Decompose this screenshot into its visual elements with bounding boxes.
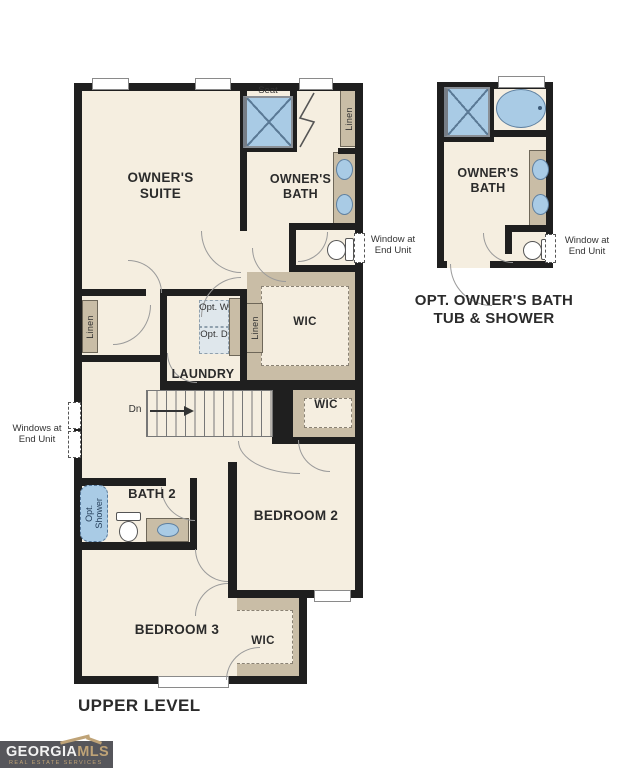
wall <box>490 130 553 137</box>
shower-icon <box>243 96 293 148</box>
stairs-down-label: Dn <box>123 404 147 415</box>
room-label-wic-bedroom3: WIC <box>236 635 290 648</box>
room-label-owners-suite: OWNER'S SUITE <box>108 170 213 203</box>
sink-icon <box>157 523 179 537</box>
optional-window-icon <box>545 234 556 263</box>
window-icon <box>158 676 229 688</box>
wall <box>74 542 197 550</box>
annotation-window-right: Window at End Unit <box>366 234 420 257</box>
wall <box>338 148 363 154</box>
room-label-bedroom2: BEDROOM 2 <box>235 508 357 524</box>
wall <box>228 462 237 598</box>
toilet-icon <box>116 512 141 521</box>
toilet-icon <box>523 241 542 260</box>
optional-dryer-label: Opt. D <box>199 330 229 340</box>
logo-brand: GEORGIAMLS <box>6 744 109 760</box>
optional-window-icon <box>68 431 81 458</box>
wall <box>490 261 553 268</box>
linen-label-hall: Linen <box>82 300 98 353</box>
wall <box>299 590 307 684</box>
stairs-icon <box>146 390 273 437</box>
optional-shower-icon <box>444 87 490 137</box>
level-title: UPPER LEVEL <box>78 696 238 716</box>
stairs-direction-arrow-icon <box>184 406 194 416</box>
sink-icon <box>532 159 549 180</box>
room-label-laundry: LAUNDRY <box>160 367 246 382</box>
wall <box>437 82 444 268</box>
window-icon <box>498 76 545 88</box>
window-icon <box>92 78 129 90</box>
room-label-wic-bedroom2: WIC <box>300 399 352 412</box>
seat-label: Seat <box>243 86 293 96</box>
wall <box>247 380 363 390</box>
wall <box>160 381 247 390</box>
toilet-icon <box>345 238 354 261</box>
optional-plan-caption-line1: OPT. OWNER'S BATH <box>405 292 583 309</box>
room-label-bedroom3: BEDROOM 3 <box>112 622 242 638</box>
room-label-bath2: BATH 2 <box>128 486 176 502</box>
optional-window-icon <box>354 233 365 263</box>
linen-label-bath: Linen <box>340 92 357 146</box>
linen-label-wic: Linen <box>246 304 263 352</box>
window-icon <box>195 78 231 90</box>
room-label-owners-bath: OWNER'S BATH <box>258 172 343 203</box>
room-label-wic-owner: WIC <box>275 316 335 329</box>
wall <box>289 265 363 272</box>
tub-drain-icon <box>538 106 542 110</box>
logo-brand-primary: GEORGIA <box>6 744 77 760</box>
sink-icon <box>532 194 549 215</box>
optional-window-icon <box>68 402 81 429</box>
window-icon <box>299 78 333 90</box>
annotation-windows-left: Windows at End Unit <box>6 423 68 446</box>
wall <box>289 223 363 230</box>
bifold-door-icon <box>297 90 319 150</box>
wall <box>272 383 293 444</box>
wall <box>74 83 82 684</box>
logo-tagline: REAL ESTATE SERVICES <box>9 760 103 766</box>
optional-shower-label: Opt. Shower <box>80 485 108 542</box>
optional-plan-caption-line2: TUB & SHOWER <box>405 310 583 327</box>
annotation-optional-window: Window at End Unit <box>560 235 614 258</box>
room-label-optional-owners-bath: OWNER'S BATH <box>450 166 526 197</box>
window-icon <box>314 590 351 602</box>
floor-plan-page: OWNER'S SUITE OWNER'S BATH Seat Linen Li… <box>0 0 620 768</box>
wall <box>437 261 447 268</box>
georgia-mls-logo: GEORGIAMLS REAL ESTATE SERVICES <box>0 741 113 768</box>
wall <box>505 225 553 232</box>
stairs-direction-line <box>150 410 186 412</box>
toilet-icon <box>327 240 346 260</box>
toilet-icon <box>119 521 138 542</box>
logo-brand-secondary: MLS <box>77 744 109 760</box>
optional-washer-label: Opt. W <box>199 303 229 313</box>
wall <box>74 355 160 362</box>
